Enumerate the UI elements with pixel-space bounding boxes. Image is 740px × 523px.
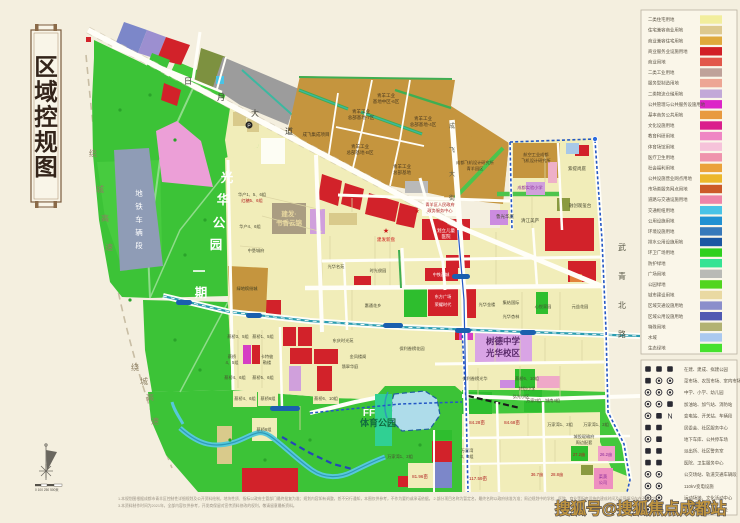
svg-text:公司: 公司 [599, 480, 607, 485]
svg-text:翡翠华庭: 翡翠华庭 [342, 363, 360, 370]
svg-text:文化设施用地: 文化设施用地 [648, 122, 675, 129]
svg-text:规: 规 [34, 129, 58, 155]
svg-text:二类住宅用地: 二类住宅用地 [648, 16, 675, 23]
svg-text:特殊用地: 特殊用地 [648, 323, 666, 330]
svg-text:水域: 水域 [648, 334, 657, 340]
svg-text:区: 区 [34, 54, 58, 80]
svg-text:公园绿地: 公园绿地 [648, 281, 666, 288]
svg-text:社会福利用地: 社会福利用地 [648, 165, 675, 172]
svg-text:航空工业成都: 航空工业成都 [523, 151, 549, 158]
svg-text:紫提尚庭: 紫提尚庭 [568, 165, 586, 172]
svg-text:城市建设用地: 城市建设用地 [648, 292, 675, 299]
svg-text:防护绿地: 防护绿地 [648, 260, 666, 267]
svg-text:医院: 医院 [442, 233, 451, 240]
svg-text:加油站、加气站、消防站: 加油站、加气站、消防站 [684, 401, 733, 408]
svg-text:万家湾1、2组: 万家湾1、2组 [547, 421, 573, 428]
svg-text:N: N [667, 413, 672, 420]
svg-text:总部基地-4区: 总部基地-4区 [410, 121, 437, 128]
svg-text:东庆时光苑: 东庆时光苑 [333, 337, 355, 344]
svg-text:飞: 飞 [449, 147, 455, 154]
svg-text:勒楼: 勒楼 [263, 359, 271, 366]
svg-text:万家湾: 万家湾 [461, 447, 474, 454]
svg-text:商业用地: 商业用地 [648, 59, 666, 66]
svg-text:路: 路 [618, 329, 626, 339]
svg-text:生态绿地: 生态绿地 [648, 345, 666, 351]
svg-text:城投琨瑜府: 城投琨瑜府 [574, 433, 595, 440]
svg-text:绿地缤纷城: 绿地缤纷城 [237, 285, 259, 292]
svg-text:时光俊园: 时光俊园 [370, 267, 387, 274]
svg-text:道路与交通设施用地: 道路与交通设施用地 [648, 196, 688, 203]
svg-text:公: 公 [213, 216, 226, 230]
svg-text:特别小学: 特别小学 [519, 385, 536, 392]
svg-text:保利香槟花园: 保利香槟花园 [399, 345, 424, 352]
svg-text:商业服务业设施用地: 商业服务业设施用地 [648, 48, 688, 55]
svg-text:蔡桥6、10组: 蔡桥6、10组 [515, 375, 539, 382]
svg-text:月: 月 [217, 93, 225, 102]
svg-text:日: 日 [184, 77, 192, 86]
svg-text:高: 高 [101, 213, 109, 223]
svg-text:光华金楼: 光华金楼 [479, 301, 496, 308]
svg-text:36.7亩: 36.7亩 [531, 471, 543, 478]
svg-text:成都实验小学: 成都实验小学 [517, 184, 542, 191]
svg-text:中学、小学、幼儿园: 中学、小学、幼儿园 [684, 389, 724, 396]
svg-text:26.2亩: 26.2亩 [600, 451, 612, 458]
svg-text:区域公用设施用地: 区域公用设施用地 [648, 313, 684, 320]
svg-text:商业兼容住宅用地: 商业兼容住宅用地 [648, 37, 684, 44]
svg-text:医疗卫生用地: 医疗卫生用地 [648, 154, 675, 161]
svg-text:公共管理与公共服务设施用地: 公共管理与公共服务设施用地 [648, 101, 706, 108]
svg-text:环卫广场用地: 环卫广场用地 [648, 249, 675, 256]
svg-text:红糖5、6组: 红糖5、6组 [241, 197, 262, 204]
svg-text:青羊园区: 青羊园区 [467, 165, 484, 172]
svg-text:117.59亩: 117.59亩 [469, 475, 487, 482]
svg-text:铁: 铁 [135, 201, 143, 211]
svg-text:保利香槟光华: 保利香槟光华 [462, 375, 487, 382]
svg-text:万家湾1、2组: 万家湾1、2组 [583, 421, 609, 428]
svg-text:心悦家园: 心悦家园 [535, 303, 552, 310]
svg-text:光华名苑: 光华名苑 [328, 263, 346, 270]
svg-text:总部基地-7区: 总部基地-7区 [348, 114, 375, 121]
svg-text:大: 大 [251, 108, 259, 118]
svg-text:81.96亩: 81.96亩 [412, 473, 428, 480]
svg-text:建发新盘: 建发新盘 [377, 236, 395, 243]
svg-text:公用设施用地: 公用设施用地 [648, 217, 675, 224]
svg-text:青: 青 [618, 271, 626, 281]
svg-text:华产1、5、6组: 华产1、5、6组 [238, 191, 266, 198]
svg-text:青羊工业: 青羊工业 [352, 108, 370, 115]
svg-text:28.8亩: 28.8亩 [551, 471, 563, 478]
svg-text:控: 控 [34, 103, 58, 130]
svg-text:街: 街 [449, 194, 455, 202]
svg-text:青羊工业: 青羊工业 [377, 92, 395, 99]
svg-text:青羊区人民政府: 青羊区人民政府 [425, 201, 454, 208]
svg-text:道: 道 [285, 126, 293, 136]
svg-text:蔡桥6组: 蔡桥6组 [261, 395, 276, 402]
svg-text:环境设施用地: 环境设施用地 [648, 228, 675, 235]
svg-text:27.2亩: 27.2亩 [573, 451, 585, 458]
svg-text:住宅兼容商业用地: 住宅兼容商业用地 [648, 27, 684, 34]
svg-text:广场用地: 广场用地 [648, 270, 666, 277]
svg-text:体育公园: 体育公园 [360, 417, 396, 428]
svg-text:园: 园 [210, 238, 223, 252]
svg-text:蔡桥6组: 蔡桥6组 [257, 426, 272, 433]
svg-text:卡特彼: 卡特彼 [261, 353, 274, 360]
svg-text:划立儿童: 划立儿童 [437, 227, 455, 234]
svg-text:飞机设计研究所: 飞机设计研究所 [521, 157, 550, 164]
svg-text:派出所、社区警务室: 派出所、社区警务室 [684, 448, 724, 455]
svg-text:★: ★ [383, 227, 389, 235]
svg-text:辆: 辆 [135, 227, 143, 237]
svg-text:排水公用设施用地: 排水公用设施用地 [648, 239, 684, 246]
svg-text:公交场站、轨道交通车辆段: 公交场站、轨道交通车辆段 [684, 471, 737, 478]
svg-text:融创观玺台: 融创观玺台 [569, 202, 592, 209]
svg-text:★: ★ [414, 208, 419, 215]
svg-text:青羊工业: 青羊工业 [351, 143, 369, 150]
svg-text:高: 高 [146, 392, 154, 402]
svg-text:万家湾1、2组: 万家湾1、2组 [387, 453, 413, 460]
svg-text:基本商务公共用地: 基本商务公共用地 [648, 112, 684, 119]
svg-text:金凤楼阁: 金凤楼阁 [350, 353, 367, 360]
svg-text:速: 速 [105, 243, 113, 252]
svg-text:总部基地: 总部基地 [393, 169, 411, 176]
svg-text:110kV变电设施: 110kV变电设施 [684, 483, 714, 490]
svg-text:二类物流仓储用地: 二类物流仓储用地 [648, 90, 684, 97]
svg-text:武: 武 [618, 242, 626, 252]
svg-text:0 100 250 500米: 0 100 250 500米 [35, 487, 59, 492]
svg-text:区域交通设施用地: 区域交通设施用地 [648, 302, 684, 309]
svg-text:周边配套: 周边配套 [576, 439, 594, 446]
svg-text:医院、卫生服务中心: 医院、卫生服务中心 [684, 459, 724, 466]
svg-text:城: 城 [96, 185, 104, 194]
svg-text:期: 期 [195, 285, 208, 300]
svg-text:段: 段 [135, 240, 143, 250]
svg-text:书香云锦: 书香云锦 [276, 218, 303, 227]
svg-text:蔡桥6、10组: 蔡桥6、10组 [314, 395, 338, 402]
svg-text:蔡桥5、6组: 蔡桥5、6组 [252, 374, 273, 381]
svg-text:3、3组: 3、3组 [460, 453, 473, 459]
svg-text:变电站、开关站、车辆段: 变电站、开关站、车辆段 [684, 413, 733, 420]
svg-text:绕: 绕 [89, 148, 97, 158]
svg-text:4、5组: 4、5组 [225, 359, 238, 365]
svg-text:青羊工业: 青羊工业 [414, 115, 432, 122]
svg-text:蔡桥4、6组: 蔡桥4、6组 [234, 395, 255, 402]
svg-text:绕: 绕 [131, 362, 139, 372]
svg-text:3.本资料制作时间为2021年，全部内容仅供参考，开发商保留: 3.本资料制作时间为2021年，全部内容仅供参考，开发商保留对宣传资料修改的权利… [118, 503, 297, 508]
svg-text:荣耀时代: 荣耀时代 [435, 301, 453, 308]
svg-text:一: 一 [193, 265, 206, 279]
svg-text:蔡桥: 蔡桥 [228, 353, 237, 360]
svg-text:交通枢纽用地: 交通枢纽用地 [648, 207, 675, 214]
svg-text:中垦城府: 中垦城府 [248, 247, 265, 254]
svg-text:菜市场、农贸市场、室内市场: 菜市场、农贸市场、室内市场 [684, 378, 740, 385]
svg-text:成飞集成项目: 成飞集成项目 [303, 131, 330, 138]
svg-text:集结国际: 集结国际 [503, 299, 520, 306]
svg-text:大: 大 [449, 170, 455, 178]
svg-text:菜蔬: 菜蔬 [599, 473, 608, 480]
svg-text:蔡桥4、6组: 蔡桥4、6组 [224, 374, 245, 381]
svg-text:速: 速 [151, 417, 159, 426]
svg-text:84.28亩: 84.28亩 [469, 419, 485, 426]
svg-text:地: 地 [135, 188, 143, 198]
svg-text:中铁西城: 中铁西城 [433, 271, 451, 278]
svg-text:基地中区-6区: 基地中区-6区 [373, 98, 400, 105]
svg-text:搜狐号@搜狐焦点成都站: 搜狐号@搜狐焦点成都站 [555, 499, 727, 518]
svg-text:二类工业用地: 二类工业用地 [648, 69, 675, 76]
svg-text:在建、建成、拟建公园: 在建、建成、拟建公园 [684, 366, 729, 373]
svg-text:政务服务中心: 政务服务中心 [427, 207, 453, 214]
svg-text:青羊工业: 青羊工业 [393, 163, 411, 170]
svg-text:光华杏林: 光华杏林 [503, 313, 521, 320]
svg-text:树德中学: 树德中学 [486, 336, 521, 346]
svg-text:地下车库、公共停车场: 地下车库、公共停车场 [684, 436, 729, 443]
svg-text:光华校区: 光华校区 [485, 348, 521, 358]
svg-text:市场类服务网点用地: 市场类服务网点用地 [648, 186, 688, 193]
svg-text:华产4、6组: 华产4、6组 [239, 223, 260, 230]
svg-text:建发·: 建发· [280, 209, 296, 218]
svg-text:成: 成 [449, 122, 455, 130]
svg-text:清江美庐: 清江美庐 [521, 217, 539, 224]
svg-text:弘光小区: 弘光小区 [513, 393, 530, 400]
svg-text:惠通花乡: 惠通花乡 [365, 302, 382, 309]
svg-text:华: 华 [217, 192, 230, 207]
svg-text:城: 城 [140, 377, 148, 386]
svg-text:教育科研用地: 教育科研用地 [648, 133, 675, 140]
svg-text:84.68亩: 84.68亩 [504, 419, 520, 426]
svg-text:万家3组、城南4组: 万家3组、城南4组 [526, 397, 560, 404]
svg-text:成都飞机设计研究所: 成都飞机设计研究所 [456, 159, 494, 166]
svg-text:居委会、社区服务中心: 居委会、社区服务中心 [684, 424, 729, 431]
svg-text:服务型制造用地: 服务型制造用地 [648, 80, 679, 87]
svg-text:体育场馆用地: 体育场馆用地 [648, 143, 675, 150]
svg-text:总部基地-B区: 总部基地-B区 [347, 149, 374, 156]
svg-text:元益花园: 元益花园 [572, 303, 589, 310]
svg-text:鲁光华庭: 鲁光华庭 [496, 213, 514, 220]
svg-text:东方广场: 东方广场 [435, 293, 452, 300]
svg-text:公共设施营业网点用地: 公共设施营业网点用地 [648, 175, 693, 182]
svg-text:图: 图 [34, 154, 58, 180]
svg-text:光: 光 [220, 170, 234, 185]
svg-text:域: 域 [34, 79, 58, 105]
svg-text:蔡桥1、5组: 蔡桥1、5组 [252, 333, 273, 340]
svg-text:车: 车 [135, 214, 143, 224]
svg-text:蔡桥3、5组: 蔡桥3、5组 [227, 333, 248, 340]
svg-text:北: 北 [618, 301, 626, 310]
